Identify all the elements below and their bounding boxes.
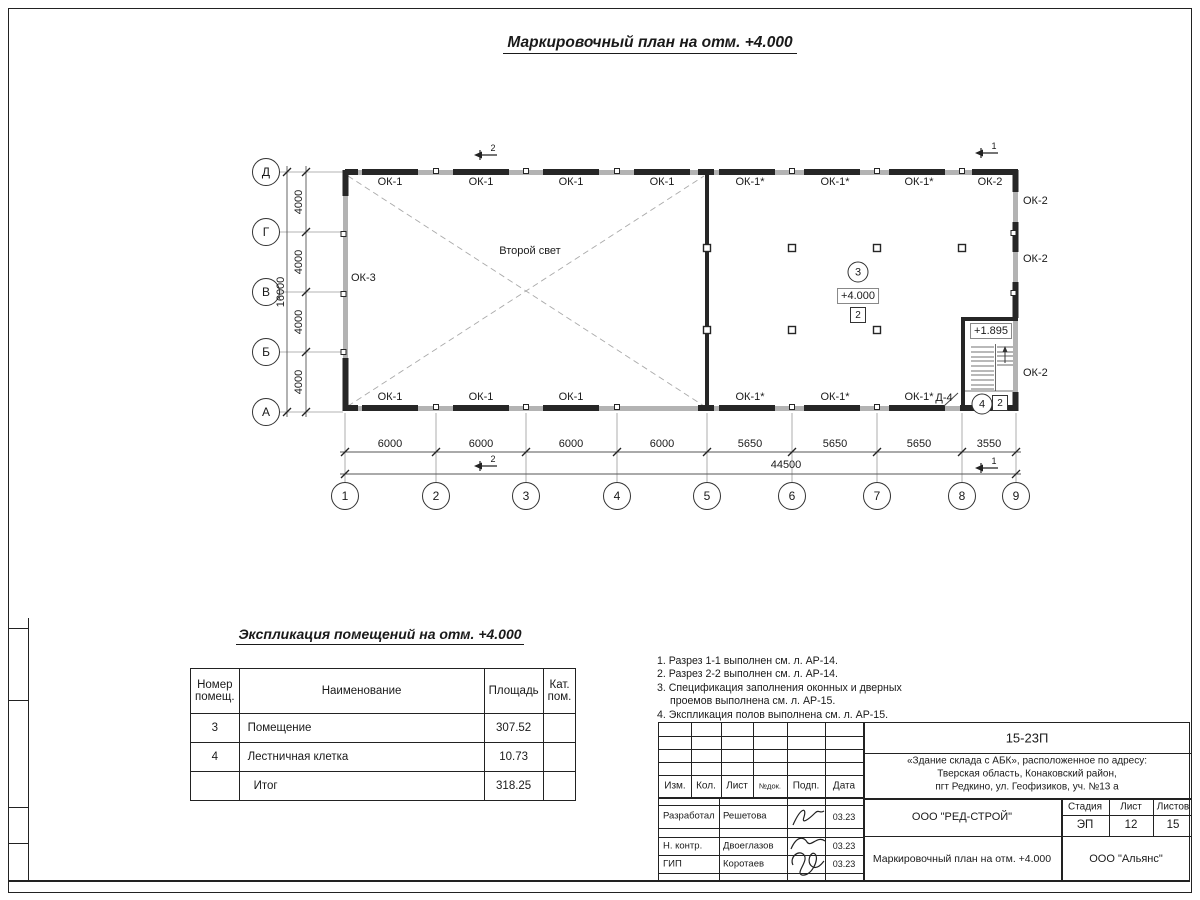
tb-col-data: Дата (833, 781, 855, 792)
walls (343, 170, 1018, 411)
tb-divider (863, 723, 865, 882)
axis-col-4: 4 (603, 482, 631, 510)
title-block: Изм. Кол. Лист №док. Подп. Дата Разработ… (658, 722, 1190, 881)
margin-divider (8, 628, 28, 629)
interior-columns (704, 245, 966, 334)
room-cat-cell (543, 772, 576, 801)
sheets-label: Листов (1157, 802, 1190, 813)
col-header: Наименование (239, 669, 484, 714)
axis-col-9: 9 (1002, 482, 1030, 510)
tb-role: Н. контр. (663, 841, 702, 852)
stair-number-circle: 4 (972, 394, 993, 415)
tb-line (1109, 798, 1110, 836)
tb-col-kol: Кол. (696, 781, 716, 792)
stage-value: ЭП (1077, 819, 1094, 831)
room-name-cell: Помещение (239, 714, 484, 743)
margin-divider (8, 807, 28, 808)
room-cat-cell (543, 714, 576, 743)
tb-line (721, 723, 722, 797)
tb-role: ГИП (663, 859, 682, 870)
tb-col-dok: №док. (759, 782, 781, 791)
room-num-cell: 3 (191, 714, 240, 743)
window-label: ОК-2 (1023, 195, 1048, 207)
tb-line (1061, 798, 1063, 882)
room-num-cell: 4 (191, 743, 240, 772)
dimension-ticks (283, 168, 1020, 478)
window-label: ОК-1 (559, 176, 584, 188)
design-company: ООО "РЕД-СТРОЙ" (912, 811, 1012, 823)
dim-label: 6000 (469, 438, 493, 450)
tb-line (659, 736, 863, 737)
tb-name: Двоеглазов (723, 841, 774, 852)
tb-line (863, 798, 1191, 800)
window-label: ОК-1* (904, 391, 933, 403)
note-line: 2. Разрез 2-2 выполнен см. л. АР-14. (657, 668, 902, 681)
table-row: 3 Помещение 307.52 (191, 714, 576, 743)
tb-date: 03.23 (833, 812, 856, 822)
axis-col-5: 5 (693, 482, 721, 510)
tb-name: Решетова (723, 811, 767, 822)
note-line: 1. Разрез 1-1 выполнен см. л. АР-14. (657, 655, 902, 668)
tb-line (863, 753, 1191, 754)
room-cat-cell (543, 743, 576, 772)
window-label: ОК-1* (904, 176, 933, 188)
room-elevation: +4.000 (837, 288, 879, 304)
tb-name: Коротаев (723, 859, 764, 870)
col-header: Номер помещ. (191, 669, 240, 714)
dim-label: 5650 (738, 438, 762, 450)
window-label: ОК-1* (820, 391, 849, 403)
window-label: ОК-1 (559, 391, 584, 403)
window-label: ОК-1 (469, 391, 494, 403)
tb-line (691, 723, 692, 797)
client-firm: ООО "Альянс" (1089, 853, 1163, 865)
doc-number: 15-23П (1006, 731, 1049, 746)
sheet-number: 12 (1125, 819, 1138, 831)
sheet-label: Лист (1120, 802, 1142, 813)
window-label: ОК-1 (378, 391, 403, 403)
col-header: Кат. пом. (543, 669, 576, 714)
window-label: ОК-3 (351, 272, 376, 284)
grid-lines (280, 172, 1016, 482)
drawing-sheet: Маркировочный план на отм. +4.000 (0, 0, 1200, 900)
tb-date: 03.23 (833, 859, 856, 869)
left-margin-column (28, 618, 29, 881)
dim-total-label: 16000 (275, 277, 287, 308)
dim-label: 4000 (293, 310, 305, 334)
axis-row-G: Г (252, 218, 280, 246)
tb-col-podp: Подп. (793, 781, 820, 792)
axis-row-A: А (252, 398, 280, 426)
room-number-circle: 3 (848, 262, 869, 283)
tb-line (659, 805, 863, 806)
note-line: проемов выполнена см. л. АР-15. (657, 695, 902, 708)
window-label: ОК-1* (735, 176, 764, 188)
stair-tag: 2 (992, 395, 1008, 411)
room-name-cell: Лестничная клетка (239, 743, 484, 772)
axis-col-2: 2 (422, 482, 450, 510)
axis-col-8: 8 (948, 482, 976, 510)
tb-line (753, 723, 754, 797)
stair-elevation: +1.895 (970, 323, 1012, 339)
tb-line (659, 855, 863, 856)
second-light-diagonals (348, 176, 704, 406)
room-name-cell: Итог (239, 772, 484, 801)
room-area-cell: 318.25 (484, 772, 543, 801)
tb-line (659, 797, 863, 799)
notes: 1. Разрез 1-1 выполнен см. л. АР-14. 2. … (657, 655, 902, 722)
dim-label: 4000 (293, 250, 305, 274)
section-markers (480, 148, 998, 473)
window-label: ОК-1 (378, 176, 403, 188)
wall-jambs (341, 169, 1016, 410)
dimension-lines (287, 166, 1021, 474)
explication-title: Экспликация помещений на отм. +4.000 (200, 626, 560, 642)
axis-col-7: 7 (863, 482, 891, 510)
dim-label: 6000 (559, 438, 583, 450)
tb-col-list: Лист (726, 781, 748, 792)
address-line: пгт Редкино, ул. Геофизиков, уч. №13 а (935, 782, 1118, 793)
address-line: Тверская область, Конаковский район, (937, 769, 1117, 780)
tb-line (659, 837, 863, 838)
dim-label: 6000 (378, 438, 402, 450)
tb-line (1153, 798, 1154, 836)
axis-col-6: 6 (778, 482, 806, 510)
dim-label: 3550 (977, 438, 1001, 450)
plan-linework (0, 0, 1200, 560)
note-line: 3. Спецификация заполнения оконных и две… (657, 682, 902, 695)
signature (787, 847, 827, 879)
axis-row-B: Б (252, 338, 280, 366)
axis-row-D: Д (252, 158, 280, 186)
explication-table: Номер помещ. Наименование Площадь Кат. п… (190, 668, 576, 801)
table-row: Итог 318.25 (191, 772, 576, 801)
stair-arrow (1003, 346, 1008, 363)
axis-col-3: 3 (512, 482, 540, 510)
tb-line (863, 836, 1191, 837)
dim-label: 4000 (293, 370, 305, 394)
window-label: ОК-1 (469, 176, 494, 188)
section-number: 1 (991, 141, 996, 151)
section-number: 1 (991, 456, 996, 466)
sheets-total: 15 (1167, 819, 1180, 831)
dim-label: 5650 (823, 438, 847, 450)
window-label: ОК-1 (650, 176, 675, 188)
table-row: 4 Лестничная клетка 10.73 (191, 743, 576, 772)
dim-label: 6000 (650, 438, 674, 450)
section-number: 2 (490, 454, 495, 464)
drawing-title: Маркировочный план на отм. +4.000 (873, 853, 1051, 865)
tb-line (719, 797, 720, 882)
signature (791, 805, 825, 829)
window-label: ОК-2 (978, 176, 1003, 188)
tb-line (659, 749, 863, 750)
tb-col-izm: Изм. (664, 781, 685, 792)
room-num-cell (191, 772, 240, 801)
section-number: 2 (490, 143, 495, 153)
door-label: Д-4 (935, 392, 952, 404)
window-label: ОК-1* (820, 176, 849, 188)
window-label: ОК-1* (735, 391, 764, 403)
second-light-label: Второй свет (499, 245, 560, 257)
tb-line (659, 828, 863, 829)
dim-label: 4000 (293, 190, 305, 214)
section-arrowheads (474, 150, 983, 472)
dim-total-label: 44500 (771, 459, 802, 471)
room-tag: 2 (850, 307, 866, 323)
address-line: «Здание склада с АБК», расположенное по … (907, 756, 1147, 767)
window-label: ОК-2 (1023, 253, 1048, 265)
tb-line (1061, 815, 1191, 816)
room-area-cell: 10.73 (484, 743, 543, 772)
table-header-row: Номер помещ. Наименование Площадь Кат. п… (191, 669, 576, 714)
margin-divider (8, 843, 28, 844)
window-label: ОК-2 (1023, 367, 1048, 379)
dim-label: 5650 (907, 438, 931, 450)
note-line: 4. Экспликация полов выполнена см. л. АР… (657, 709, 902, 722)
stage-label: Стадия (1068, 802, 1102, 813)
margin-divider (8, 700, 28, 701)
axis-col-1: 1 (331, 482, 359, 510)
tb-line (659, 775, 863, 776)
tb-line (659, 762, 863, 763)
window-segments (343, 169, 1019, 411)
tb-role: Разработал (663, 811, 715, 822)
tb-line (659, 873, 863, 874)
tb-date: 03.23 (833, 841, 856, 851)
col-header: Площадь (484, 669, 543, 714)
room-area-cell: 307.52 (484, 714, 543, 743)
